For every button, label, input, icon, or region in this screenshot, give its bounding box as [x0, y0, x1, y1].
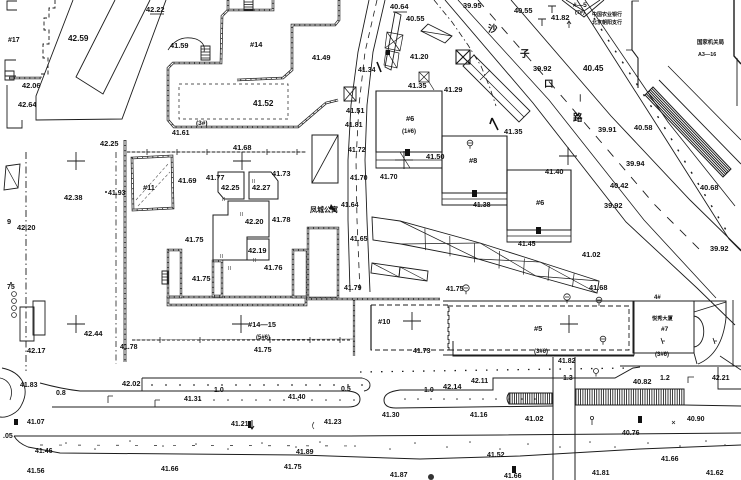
- svg-text:国家机关局: 国家机关局: [697, 38, 725, 46]
- svg-text:41.75: 41.75: [192, 274, 211, 283]
- svg-text:41.31: 41.31: [184, 396, 202, 403]
- svg-text:41.69: 41.69: [178, 176, 197, 185]
- svg-text:II: II: [253, 258, 257, 264]
- svg-text:A3—16: A3—16: [698, 52, 716, 58]
- svg-text:.05: .05: [3, 433, 13, 440]
- svg-text:41.29: 41.29: [444, 85, 463, 94]
- svg-text:#5: #5: [534, 324, 542, 333]
- svg-text:41.49: 41.49: [312, 53, 331, 62]
- svg-text:42.14: 42.14: [443, 382, 462, 391]
- svg-text:1.2: 1.2: [660, 375, 670, 382]
- svg-text:39.92: 39.92: [533, 64, 552, 73]
- svg-text:41.45: 41.45: [518, 241, 536, 248]
- svg-text:#7: #7: [661, 326, 669, 333]
- svg-text:41.68: 41.68: [233, 143, 252, 152]
- svg-text:41.66: 41.66: [661, 456, 679, 463]
- svg-text:41.21: 41.21: [231, 421, 249, 428]
- svg-text:41.87: 41.87: [390, 472, 408, 479]
- svg-text:40.90: 40.90: [687, 416, 705, 423]
- svg-text:40.82: 40.82: [633, 377, 652, 386]
- svg-text:39.91: 39.91: [598, 125, 617, 134]
- svg-text:39.95: 39.95: [463, 1, 482, 10]
- svg-text:39.92: 39.92: [710, 244, 729, 253]
- svg-text:42.06: 42.06: [22, 81, 41, 90]
- svg-text:42.20: 42.20: [245, 217, 264, 226]
- svg-text:口: 口: [544, 79, 554, 90]
- svg-text:41.82: 41.82: [551, 13, 570, 22]
- svg-text:41.35: 41.35: [504, 127, 523, 136]
- svg-text:41.75: 41.75: [284, 464, 302, 471]
- svg-text:1.3: 1.3: [563, 375, 573, 382]
- svg-text:41.75: 41.75: [446, 286, 464, 293]
- svg-text:(7#): (7#): [575, 10, 585, 16]
- svg-text:41.78: 41.78: [120, 344, 138, 351]
- svg-text:41.50: 41.50: [426, 152, 445, 161]
- svg-text:41.64: 41.64: [341, 202, 359, 209]
- svg-text:42.64: 42.64: [18, 100, 37, 109]
- svg-text:41.73: 41.73: [413, 348, 431, 355]
- svg-text:41.68: 41.68: [589, 283, 608, 292]
- svg-text:(5#6): (5#6): [256, 335, 270, 341]
- svg-text:41.81: 41.81: [345, 122, 363, 129]
- svg-text:40.76: 40.76: [622, 430, 640, 437]
- svg-text:41.16: 41.16: [470, 412, 488, 419]
- svg-text:41.23: 41.23: [324, 419, 342, 426]
- svg-text:(3#6): (3#6): [534, 349, 548, 355]
- svg-text:41.73: 41.73: [272, 169, 291, 178]
- svg-text:41.77: 41.77: [206, 173, 225, 182]
- svg-text:9: 9: [7, 217, 11, 226]
- svg-text:#11: #11: [143, 183, 155, 192]
- svg-text:0.5: 0.5: [341, 386, 351, 393]
- svg-text:41.61: 41.61: [172, 130, 190, 137]
- svg-text:1.0: 1.0: [424, 387, 434, 394]
- svg-text:41.35: 41.35: [408, 81, 427, 90]
- svg-text:41.70: 41.70: [380, 174, 398, 181]
- svg-text:41.81: 41.81: [592, 470, 610, 477]
- svg-text:北京朝阳支行: 北京朝阳支行: [592, 19, 622, 26]
- svg-text:4#: 4#: [654, 295, 661, 301]
- svg-text:40.55: 40.55: [514, 6, 533, 15]
- svg-text:41.38: 41.38: [473, 202, 491, 209]
- svg-text:42.25: 42.25: [221, 183, 240, 192]
- svg-text:39.92: 39.92: [604, 201, 623, 210]
- svg-text:#6: #6: [536, 198, 544, 207]
- svg-text:40.58: 40.58: [634, 123, 653, 132]
- svg-text:0.8: 0.8: [56, 390, 66, 397]
- svg-text:40.45: 40.45: [583, 64, 604, 73]
- svg-text:42.02: 42.02: [122, 379, 141, 388]
- svg-text:中国农业银行: 中国农业银行: [592, 11, 622, 18]
- svg-text:42.20: 42.20: [17, 223, 36, 232]
- svg-text:路: 路: [573, 112, 583, 124]
- svg-text:41.75: 41.75: [254, 347, 272, 354]
- svg-text:#6: #6: [406, 114, 414, 123]
- svg-text:41.83: 41.83: [20, 382, 38, 389]
- svg-text:II: II: [220, 254, 224, 260]
- svg-text:42.38: 42.38: [64, 193, 83, 202]
- svg-text:41.40: 41.40: [545, 167, 564, 176]
- svg-text:41.76: 41.76: [264, 263, 283, 272]
- svg-text:悦秀大厦: 悦秀大厦: [652, 314, 674, 322]
- svg-text:(3#6): (3#6): [655, 352, 669, 358]
- svg-text:#14—15: #14—15: [248, 320, 276, 329]
- svg-text:41.59: 41.59: [170, 41, 189, 50]
- svg-text:▏: ▏: [579, 94, 585, 102]
- svg-text:41.52: 41.52: [253, 99, 274, 108]
- svg-text:41.51: 41.51: [346, 106, 365, 115]
- svg-text:41.34: 41.34: [358, 67, 376, 74]
- svg-text:42.25: 42.25: [100, 139, 119, 148]
- svg-text:42.19: 42.19: [248, 246, 267, 255]
- svg-text:40.64: 40.64: [390, 2, 409, 11]
- svg-text:42.44: 42.44: [84, 329, 103, 338]
- svg-text:41.65: 41.65: [350, 236, 368, 243]
- svg-text:41.46: 41.46: [35, 448, 53, 455]
- svg-text:II: II: [228, 266, 232, 272]
- svg-text:41.40: 41.40: [288, 394, 306, 401]
- svg-text:41.52: 41.52: [487, 452, 505, 459]
- svg-text:II: II: [240, 212, 244, 218]
- svg-text:41.75: 41.75: [185, 235, 204, 244]
- svg-text:40.68: 40.68: [700, 183, 719, 192]
- svg-text:41.78: 41.78: [272, 215, 291, 224]
- svg-text:(1#6): (1#6): [402, 129, 416, 135]
- svg-text:41.70: 41.70: [350, 175, 368, 182]
- svg-text:42.17: 42.17: [27, 346, 46, 355]
- svg-text:(3#): (3#): [196, 120, 208, 127]
- svg-text:41.30: 41.30: [382, 412, 400, 419]
- svg-text:41.20: 41.20: [410, 52, 429, 61]
- svg-text:41.89: 41.89: [296, 449, 314, 456]
- svg-text:41.02: 41.02: [525, 414, 544, 423]
- svg-text:40.42: 40.42: [610, 181, 629, 190]
- svg-text:#17: #17: [8, 37, 20, 44]
- svg-text:40.55: 40.55: [406, 14, 425, 23]
- svg-text:1.0: 1.0: [214, 387, 224, 394]
- svg-text:41.66: 41.66: [161, 466, 179, 473]
- svg-text:41.79: 41.79: [344, 285, 362, 292]
- svg-text:39.94: 39.94: [626, 159, 645, 168]
- svg-text:41.82: 41.82: [558, 358, 576, 365]
- svg-text:子: 子: [520, 49, 530, 60]
- svg-text:沙: 沙: [488, 24, 498, 35]
- svg-text:41.62: 41.62: [706, 470, 724, 477]
- svg-text:II: II: [222, 197, 226, 203]
- svg-text:#—5: #—5: [573, 2, 587, 9]
- svg-text:41.56: 41.56: [27, 468, 45, 475]
- svg-text:75: 75: [7, 284, 15, 291]
- svg-text:#10: #10: [378, 317, 390, 326]
- svg-text:#8: #8: [469, 156, 477, 165]
- svg-text:41.07: 41.07: [27, 419, 45, 426]
- svg-text:41.93: 41.93: [108, 190, 126, 197]
- svg-text:41.72: 41.72: [348, 147, 366, 154]
- svg-text:42.59: 42.59: [68, 34, 89, 43]
- svg-text:41.66: 41.66: [504, 473, 522, 480]
- svg-text:#14: #14: [250, 40, 263, 49]
- svg-text:II: II: [252, 179, 256, 185]
- svg-text:42.21: 42.21: [712, 375, 730, 382]
- svg-text:42.11: 42.11: [471, 378, 488, 385]
- svg-text:41.02: 41.02: [582, 250, 601, 259]
